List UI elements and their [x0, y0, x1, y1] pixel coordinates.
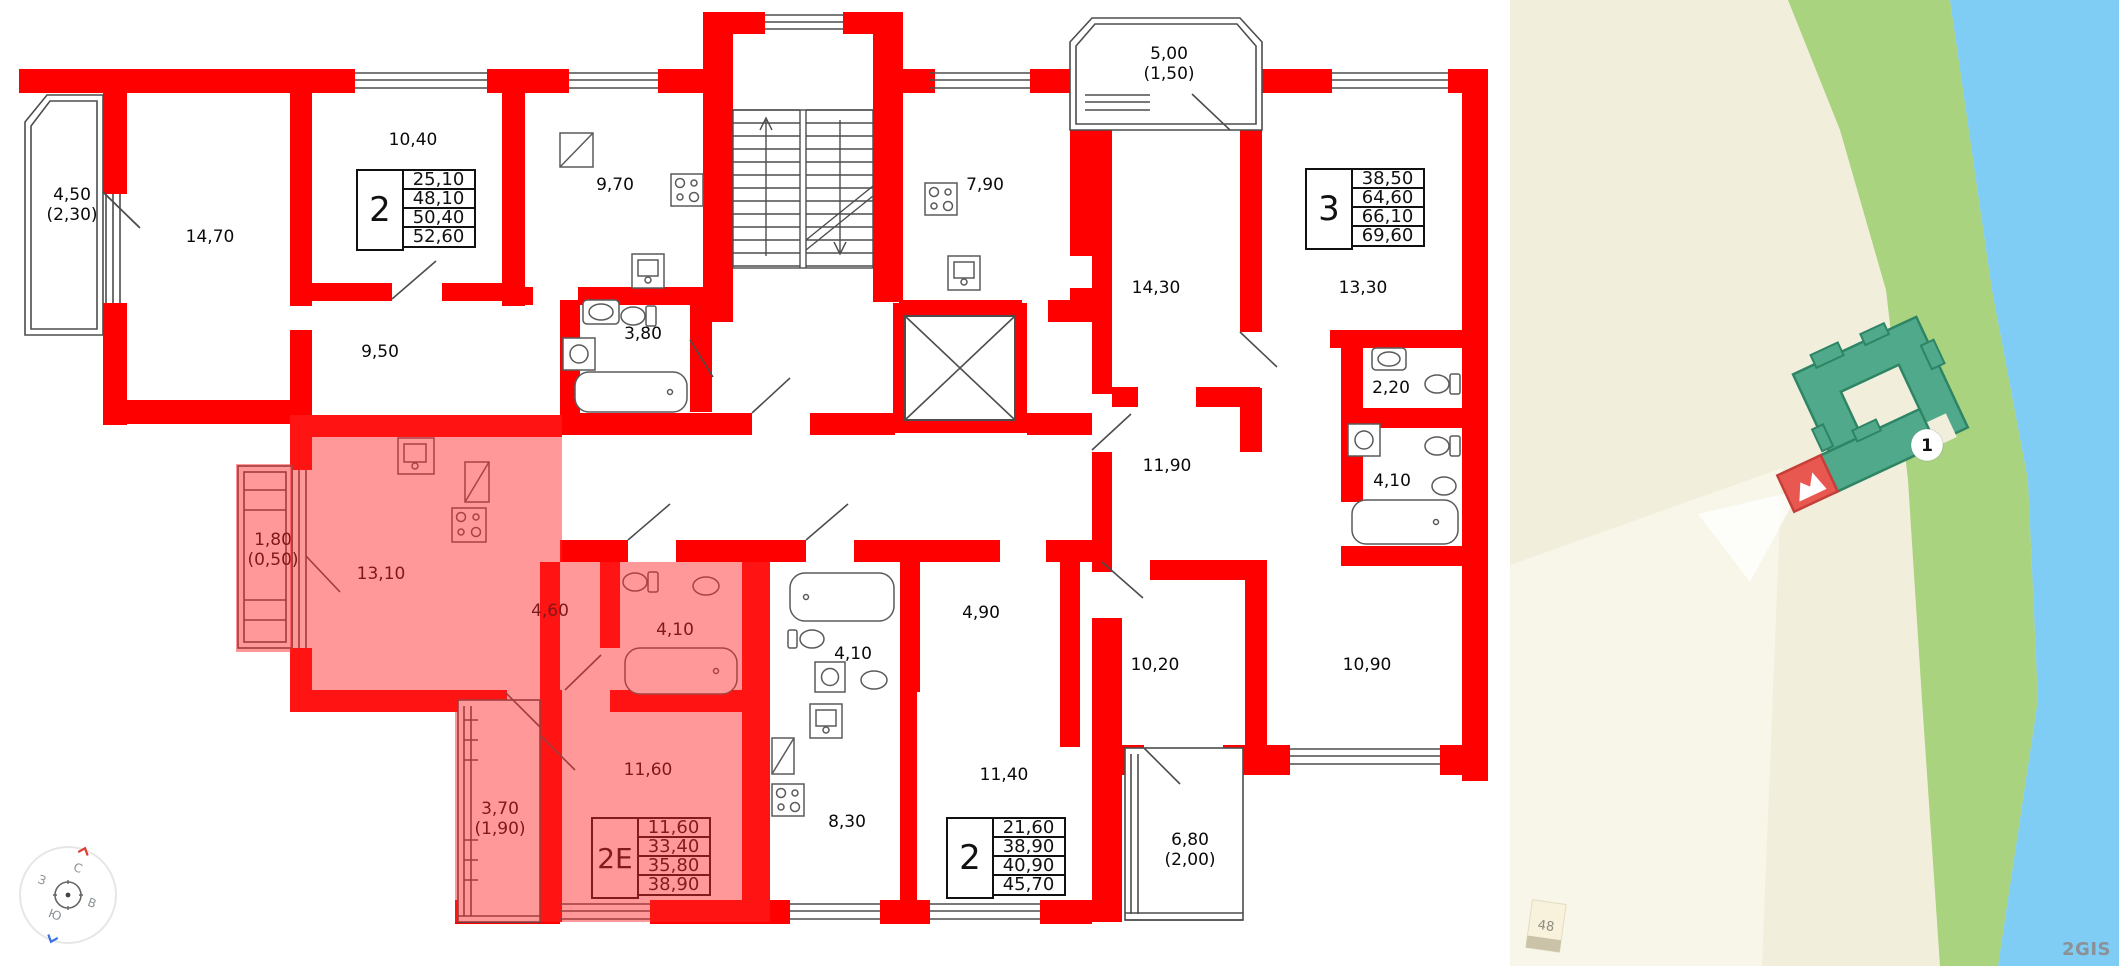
apartment-2e-selected[interactable]: 2Е11,6033,4035,8038,90 [591, 817, 711, 899]
apartment-type: 2 [946, 817, 994, 899]
room-label-room-14-30: 14,30 [1132, 278, 1181, 298]
room-label-room-10-20: 10,20 [1131, 655, 1180, 675]
room-label-corridor-9-50: 9,50 [361, 342, 399, 362]
room-label-bath-2-20: 2,20 [1372, 378, 1410, 398]
apartment-3[interactable]: 338,5064,6066,1069,60 [1305, 168, 1425, 250]
room-label-balcony-4-50: 4,50(2,30) [46, 185, 97, 225]
room-label-balcony-1-80: 1,80(0,50) [247, 530, 298, 570]
plan-labels: 4,50(2,30)14,7010,409,707,905,00(1,50)14… [0, 0, 2119, 966]
room-label-bath-4-10-mid: 4,10 [834, 644, 872, 664]
compass: С В Ю З [0, 828, 140, 966]
room-label-room-14-70: 14,70 [186, 227, 235, 247]
apartment-area-value: 38,90 [637, 874, 711, 896]
room-label-room-10-40: 10,40 [389, 130, 438, 150]
floorplan-viewer: 4,50(2,30)14,7010,409,707,905,00(1,50)14… [0, 0, 2119, 966]
room-label-kitchen-9-70: 9,70 [596, 175, 634, 195]
room-label-room-11-90: 11,90 [1143, 456, 1192, 476]
room-label-room-13-30: 13,30 [1339, 278, 1388, 298]
apartment-type: 2Е [591, 817, 639, 899]
apartment-area-value: 69,60 [1351, 225, 1425, 247]
room-label-bath-4-10-selected: 4,10 [656, 620, 694, 640]
apartment-2-top[interactable]: 225,1048,1050,4052,60 [356, 169, 476, 251]
apartment-area-value: 45,70 [992, 874, 1066, 896]
2gis-watermark[interactable]: 2GIS [2062, 939, 2111, 960]
apartment-type: 3 [1305, 168, 1353, 250]
apartment-type: 2 [356, 169, 404, 251]
room-label-kitchen-7-90: 7,90 [966, 175, 1004, 195]
room-label-balcony-3-70: 3,70(1,90) [474, 799, 525, 839]
room-label-kitchen-8-30: 8,30 [828, 812, 866, 832]
room-label-hall-4-90: 4,90 [962, 603, 1000, 623]
room-label-bath-4-10-right: 4,10 [1373, 471, 1411, 491]
room-label-kitchen-13-10: 13,10 [357, 564, 406, 584]
room-label-balcony-6-80: 6,80(2,00) [1164, 830, 1215, 870]
room-label-room-11-60: 11,60 [624, 760, 673, 780]
apartment-area-value: 52,60 [402, 226, 476, 248]
room-label-room-10-90: 10,90 [1343, 655, 1392, 675]
room-label-hall-4-60: 4,60 [531, 601, 569, 621]
room-label-bath-3-80: 3,80 [624, 324, 662, 344]
room-label-balcony-5-00: 5,00(1,50) [1143, 44, 1194, 84]
room-label-room-11-40: 11,40 [980, 765, 1029, 785]
apartment-2-bottom[interactable]: 221,6038,9040,9045,70 [946, 817, 1066, 899]
